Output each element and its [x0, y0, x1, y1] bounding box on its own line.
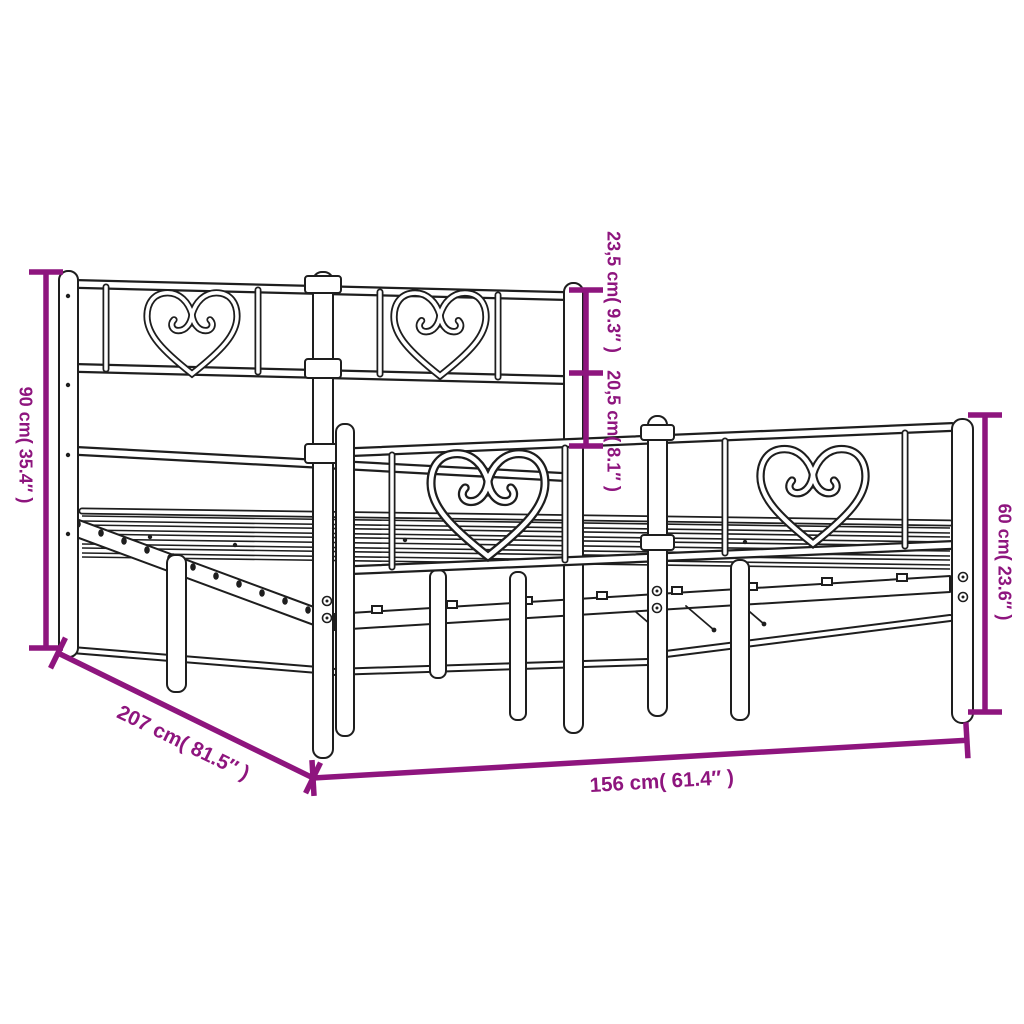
slatted-base [60, 511, 950, 630]
footboard-left-post [336, 424, 354, 736]
support-leg [731, 560, 749, 720]
joint-bracket [641, 425, 674, 440]
product-dimension-diagram: 90 cm( 35.4″ ) 23,5 cm( 9.3″ ) 20,5 cm( … [0, 0, 1024, 1024]
heart-motif [147, 293, 237, 374]
footboard-height-label: 60 cm( 23.6″ ) [995, 504, 1015, 621]
lower-section-label: 20,5 cm( 8.1″ ) [604, 370, 624, 492]
dimension-footboard-height: 60 cm( 23.6″ ) [968, 415, 1015, 712]
footboard-center-post [648, 416, 667, 716]
joint-bracket [305, 359, 341, 378]
width-label: 156 cm( 61.4″ ) [589, 766, 734, 797]
heart-motif [394, 293, 486, 376]
support-leg [510, 572, 526, 720]
footboard-right-post [952, 419, 973, 723]
heart-motif [761, 449, 866, 543]
joint-bracket [305, 276, 341, 293]
support-leg [430, 570, 446, 678]
bed-frame-diagram-canvas: 90 cm( 35.4″ ) 23,5 cm( 9.3″ ) 20,5 cm( … [0, 0, 1024, 1024]
headboard-spindles [106, 287, 498, 377]
headboard-left-post [59, 271, 78, 657]
dimension-headboard-height: 90 cm( 35.4″ ) [16, 272, 63, 648]
headboard-height-label: 90 cm( 35.4″ ) [16, 387, 36, 504]
side-rail-head-half [60, 513, 322, 628]
top-section-label: 23,5 cm( 9.3″ ) [604, 231, 624, 353]
side-rail-foot-half [334, 574, 950, 630]
joint-bracket [641, 535, 674, 550]
dimension-width: 156 cm( 61.4″ ) [312, 722, 969, 813]
headboard-center-post [313, 272, 333, 758]
support-leg [167, 555, 186, 692]
